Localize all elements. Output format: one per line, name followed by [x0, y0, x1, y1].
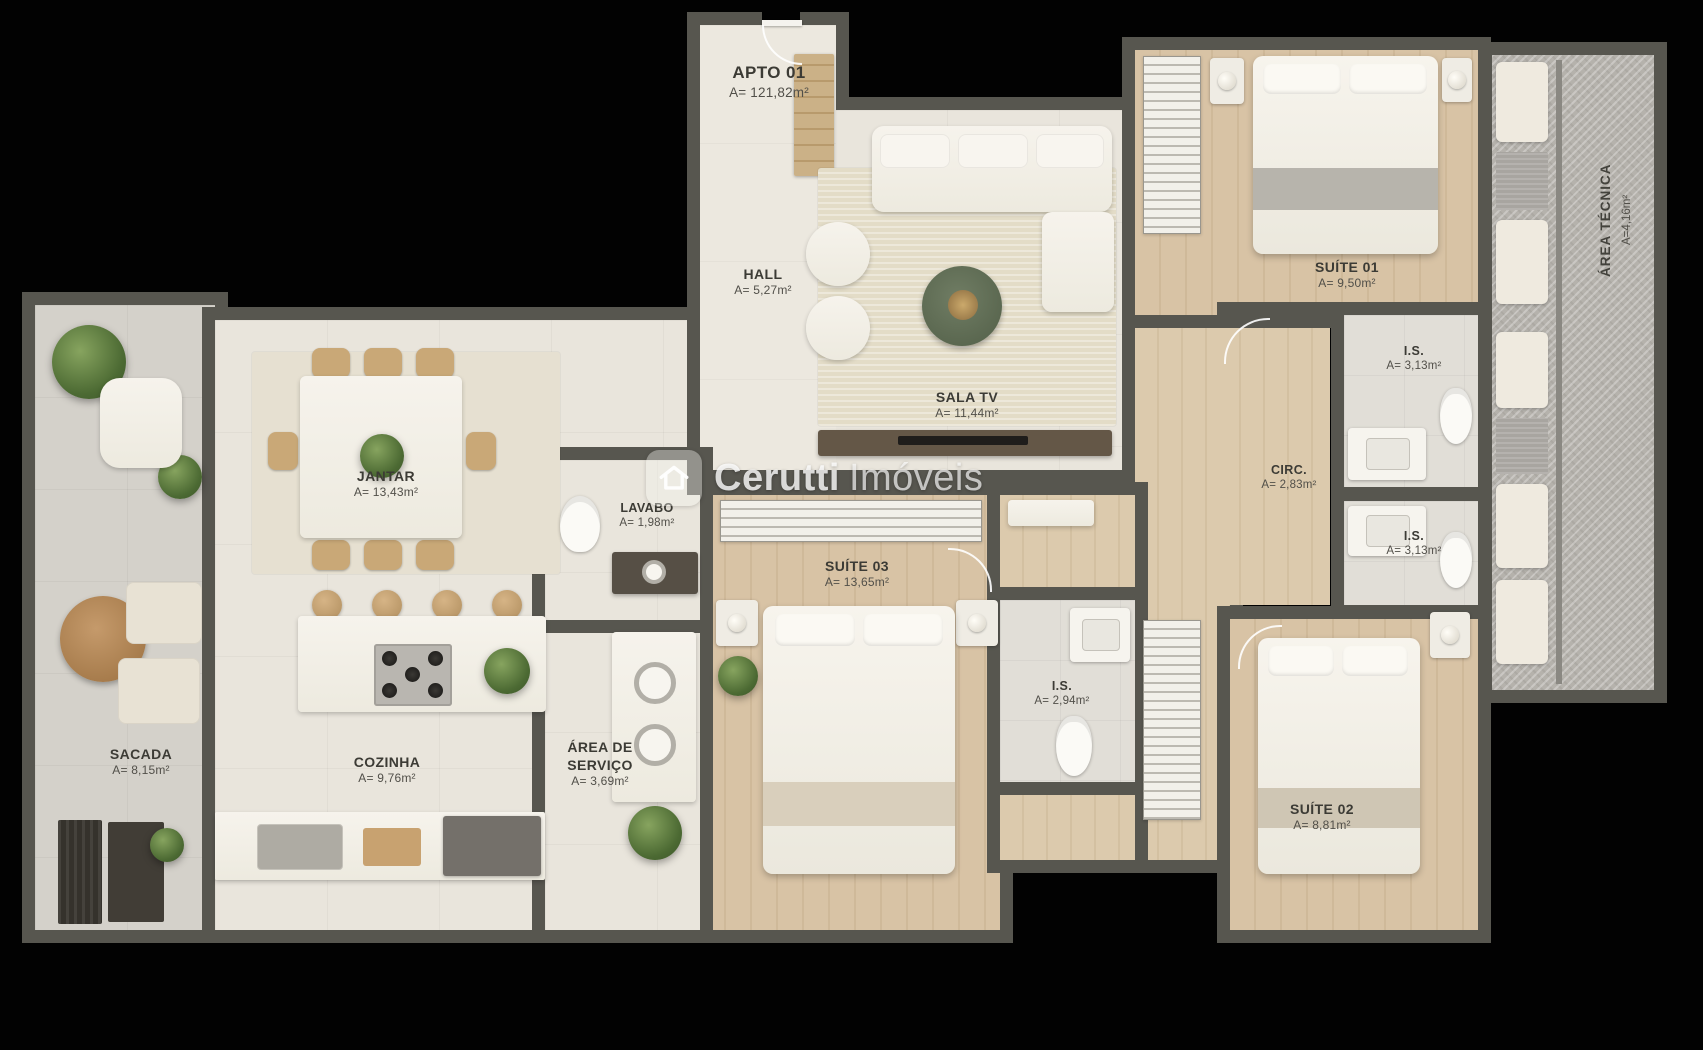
lamp	[1218, 72, 1236, 90]
room-label-suite01: SUÍTE 01 A= 9,50m²	[1315, 258, 1379, 292]
room-name: SUÍTE 02	[1290, 800, 1354, 818]
room-label-sala-tv: SALA TV A= 11,44m²	[935, 388, 998, 422]
toilet	[560, 496, 600, 552]
lamp	[968, 614, 986, 632]
nightstand	[1210, 58, 1244, 104]
room-label-area-tecnica: ÁREA TÉCNICA A=4,16m²	[1596, 145, 1638, 295]
sofa-chaise	[1042, 212, 1114, 312]
round-armchair	[806, 296, 870, 360]
washer-door	[634, 662, 676, 704]
island-plant	[484, 648, 530, 694]
round-armchair	[806, 222, 870, 286]
room-label-apto: APTO 01 A= 121,82m²	[729, 62, 809, 102]
room-name: SUÍTE 01	[1315, 258, 1379, 276]
wall	[687, 12, 762, 25]
ac-unit	[1496, 484, 1548, 568]
room-name: SALA TV	[935, 388, 998, 406]
room-name: I.S.	[1034, 678, 1089, 694]
room-label-area-servico: ÁREA DE SERVIÇO A= 3,69m²	[554, 738, 646, 790]
room-label-suite03: SUÍTE 03 A= 13,65m²	[825, 557, 889, 591]
divider	[1556, 60, 1562, 684]
house-icon	[657, 461, 691, 495]
room-area: A= 2,83m²	[1261, 478, 1316, 493]
wardrobe	[1143, 620, 1201, 820]
wardrobe	[1143, 56, 1201, 234]
lamp	[1448, 71, 1466, 89]
wash-basin	[642, 560, 666, 584]
dried-flower	[948, 290, 978, 320]
burner	[428, 651, 443, 666]
toilet	[1440, 388, 1472, 444]
wall	[687, 12, 700, 470]
room-area: A= 3,13m²	[1386, 359, 1441, 374]
ac-unit	[1496, 62, 1548, 142]
brand-name-light: Imóveis	[849, 457, 983, 499]
toilet	[1056, 716, 1092, 776]
room-name: SACADA	[110, 745, 172, 763]
room-label-is-suite03: I.S. A= 2,94m²	[1034, 678, 1089, 709]
bed-throw	[763, 782, 955, 826]
bed-suite03	[763, 606, 955, 874]
tv	[898, 436, 1028, 445]
room-area: A= 8,81m²	[1290, 818, 1354, 834]
room-label-circ: CIRC. A= 2,83m²	[1261, 462, 1316, 493]
room-area: A= 11,44m²	[935, 406, 998, 422]
bathroom-vanity	[1348, 428, 1426, 480]
nightstand	[1442, 58, 1472, 102]
room-area: A= 3,69m²	[554, 774, 646, 790]
lamp	[1441, 626, 1459, 644]
room-area: A= 13,43m²	[354, 485, 418, 501]
chair	[312, 540, 350, 570]
chair	[268, 432, 298, 470]
toilet	[1440, 532, 1472, 588]
burner	[382, 683, 397, 698]
lounge-chair	[126, 582, 202, 644]
kitchen-sink	[257, 824, 343, 870]
plant	[150, 828, 184, 862]
room-name: ÁREA DE SERVIÇO	[554, 738, 646, 774]
sink	[1082, 619, 1120, 651]
plant	[628, 806, 682, 860]
nightstand	[956, 600, 998, 646]
cutting-board	[363, 828, 421, 866]
brand-logo-icon	[646, 450, 702, 506]
bathroom-vanity	[1070, 608, 1130, 662]
room-name: COZINHA	[354, 753, 421, 771]
room-area: A= 2,94m²	[1034, 694, 1089, 709]
room-area: A= 1,98m²	[619, 516, 674, 531]
brand-name: CeruttiImóveis	[714, 457, 983, 500]
room-name: JANTAR	[354, 467, 418, 485]
room-label-suite02: SUÍTE 02 A= 8,81m²	[1290, 800, 1354, 834]
equipment	[1496, 418, 1548, 474]
room-label-jantar: JANTAR A= 13,43m²	[354, 467, 418, 501]
bed-suite02	[1258, 638, 1420, 874]
sofa-cushion	[958, 134, 1028, 168]
sofa-cushion	[1036, 134, 1104, 168]
chair	[312, 348, 350, 378]
ac-unit	[1496, 332, 1548, 408]
room-area: A= 8,15m²	[110, 763, 172, 779]
equipment	[1496, 152, 1548, 210]
console-table	[1008, 500, 1094, 526]
burner	[382, 651, 397, 666]
room-area: A= 9,76m²	[354, 771, 421, 787]
cooktop	[374, 644, 452, 706]
room-area: A= 3,13m²	[1386, 544, 1441, 559]
room-area: A=4,16m²	[1621, 195, 1633, 245]
wall	[1217, 302, 1344, 315]
room-label-cozinha: COZINHA A= 9,76m²	[354, 753, 421, 787]
room-corridor-bottom	[1000, 795, 1135, 860]
nightstand	[716, 600, 758, 646]
room-area: A= 121,82m²	[729, 84, 809, 102]
chair	[364, 348, 402, 378]
burner	[428, 683, 443, 698]
room-label-sacada: SACADA A= 8,15m²	[110, 745, 172, 779]
room-name: CIRC.	[1261, 462, 1316, 478]
sofa-cushion	[880, 134, 950, 168]
wall	[836, 12, 849, 110]
ac-unit	[1496, 580, 1548, 664]
room-name: APTO 01	[729, 62, 809, 84]
room-name: ÁREA TÉCNICA	[1598, 163, 1613, 277]
room-name: HALL	[734, 265, 792, 283]
pillow	[1263, 64, 1341, 94]
pillow	[863, 614, 943, 646]
chair	[364, 540, 402, 570]
room-label-is-top: I.S. A= 3,13m²	[1386, 343, 1441, 374]
room-name: SUÍTE 03	[825, 557, 889, 575]
sofa	[872, 126, 1112, 212]
appliance	[443, 816, 541, 876]
chair	[466, 432, 496, 470]
room-area: A= 13,65m²	[825, 575, 889, 591]
armchair	[100, 378, 182, 468]
chair	[416, 348, 454, 378]
room-label-is-mid: I.S. A= 3,13m²	[1386, 528, 1441, 559]
room-name: I.S.	[1386, 528, 1441, 544]
room-area: A= 5,27m²	[734, 283, 792, 299]
chair	[416, 540, 454, 570]
lamp	[728, 614, 746, 632]
room-name: I.S.	[1386, 343, 1441, 359]
brand-name-bold: Cerutti	[714, 457, 840, 499]
kitchen-island	[298, 616, 546, 712]
floor-plan: APTO 01 A= 121,82m² HALL A= 5,27m² SALA …	[0, 0, 1703, 1050]
watermark: CeruttiImóveis	[646, 450, 983, 506]
plant	[718, 656, 758, 696]
pillow	[1349, 64, 1427, 94]
bed-throw	[1253, 168, 1438, 210]
wardrobe	[720, 500, 982, 542]
kitchen-counter	[215, 812, 545, 880]
burner	[405, 667, 420, 682]
room-label-hall: HALL A= 5,27m²	[734, 265, 792, 299]
room-area: A= 9,50m²	[1315, 276, 1379, 292]
bed-suite01	[1253, 56, 1438, 254]
coffee-table	[922, 266, 1002, 346]
lounge-chair	[118, 658, 200, 724]
pillow	[1342, 646, 1408, 676]
nightstand	[1430, 612, 1470, 658]
ac-unit	[1496, 220, 1548, 304]
pillow	[775, 614, 855, 646]
lavabo-counter	[612, 552, 698, 594]
sink	[1366, 438, 1410, 470]
planter-box	[58, 820, 102, 924]
